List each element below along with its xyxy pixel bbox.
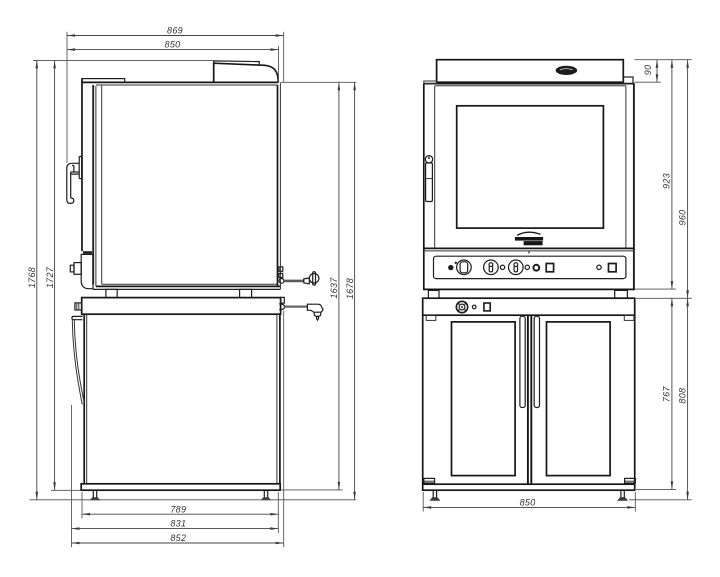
- svg-text:767: 767: [662, 386, 672, 403]
- svg-text:789: 789: [170, 504, 186, 514]
- svg-text:852: 852: [170, 533, 186, 543]
- svg-text:850: 850: [165, 40, 181, 50]
- svg-text:850: 850: [520, 498, 536, 508]
- svg-text:1637: 1637: [329, 277, 339, 299]
- svg-text:1678: 1678: [345, 278, 355, 299]
- svg-text:869: 869: [167, 26, 183, 36]
- svg-text:808: 808: [677, 388, 687, 404]
- svg-text:90: 90: [643, 65, 653, 76]
- svg-text:831: 831: [170, 519, 186, 529]
- svg-text:1768: 1768: [27, 267, 37, 288]
- svg-text:923: 923: [662, 173, 672, 189]
- svg-text:960: 960: [677, 210, 687, 226]
- svg-text:1727: 1727: [45, 266, 55, 288]
